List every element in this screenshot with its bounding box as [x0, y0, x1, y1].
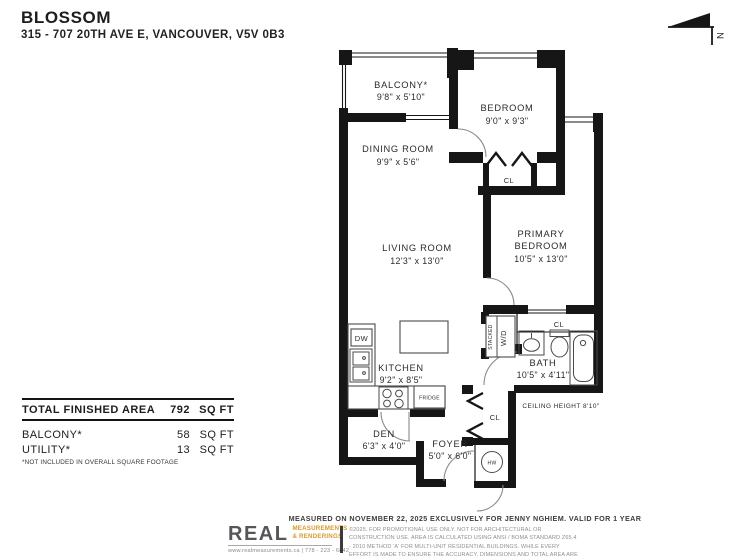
- balcony-dims: 9'8" x 5'10": [377, 92, 425, 102]
- den-label: DEN: [373, 429, 395, 439]
- den-dims: 6'3" x 4'0": [363, 441, 406, 451]
- utility-area-label: UTILITY*: [22, 444, 156, 456]
- primary-bedroom-dims: 10'5" x 13'0": [514, 254, 567, 264]
- bath-dims: 10'5" x 4'11": [517, 370, 570, 380]
- primary-closet-label: CL: [554, 320, 565, 329]
- kitchen-dims: 9'2" x 8'5": [380, 375, 423, 385]
- total-area-label: TOTAL FINISHED AREA: [22, 404, 156, 416]
- bath-label: BATH: [530, 358, 557, 368]
- total-area-row: TOTAL FINISHED AREA 792 SQ FT: [22, 398, 234, 421]
- company-logo: REAL MEASUREMENTS & RENDERINGS www.realm…: [228, 525, 332, 554]
- disclaimer-text: ©2025. FOR PROMOTIONAL USE ONLY. NOT FOR…: [349, 526, 580, 560]
- bedroom-label: BEDROOM: [481, 103, 534, 113]
- bifold-doors: [468, 153, 532, 439]
- balcony-label: BALCONY*: [374, 80, 428, 90]
- utility-area-value: 13: [156, 444, 190, 456]
- balcony-area-value: 58: [156, 429, 190, 441]
- total-area-unit: SQ FT: [190, 404, 234, 416]
- floorplan-drawing: N: [0, 0, 747, 560]
- logo-sub-line2: & RENDERINGS: [292, 533, 342, 540]
- washer-dryer: STACKED W/D: [486, 316, 515, 357]
- floorplan-sheet: BLOSSOM 315 - 707 20TH AVE E, VANCOUVER,…: [0, 0, 747, 560]
- total-area-value: 792: [156, 404, 190, 416]
- dishwasher: DW: [351, 329, 372, 346]
- ceiling-height-note: CEILING HEIGHT 8'10": [522, 403, 599, 410]
- logo-contact: www.realmeasurements.ca | 778 - 223 - 68…: [228, 545, 332, 554]
- balcony-area-label: BALCONY*: [22, 429, 156, 441]
- foyer-label: FOYER: [432, 439, 468, 449]
- living-room-dims: 12'3" x 13'0": [390, 256, 443, 266]
- north-label: N: [715, 32, 725, 39]
- hall-closet-label: CL: [490, 413, 501, 422]
- fridge: FRIDGE: [414, 386, 445, 408]
- logo-name: REAL: [228, 525, 288, 543]
- washer-dryer-label: W/D: [499, 330, 508, 346]
- balcony-area-row: BALCONY* 58 SQ FT: [22, 429, 234, 441]
- hot-water-label: HW: [488, 461, 497, 467]
- dining-room-dims: 9'9" x 5'6": [377, 157, 420, 167]
- toilet: [550, 330, 569, 357]
- kitchen-label: KITCHEN: [378, 363, 424, 373]
- measured-line: MEASURED ON NOVEMBER 22, 2025 EXCLUSIVEL…: [230, 514, 700, 523]
- primary-bedroom-label-2: BEDROOM: [515, 241, 568, 251]
- balcony-area-unit: SQ FT: [190, 429, 234, 441]
- bedroom-closet-label: CL: [504, 176, 515, 185]
- area-table: TOTAL FINISHED AREA 792 SQ FT BALCONY* 5…: [22, 398, 234, 466]
- bedroom-dims: 9'0" x 9'3": [486, 116, 529, 126]
- bathtub: [570, 331, 597, 385]
- dining-room-label: DINING ROOM: [362, 144, 434, 154]
- interior-walls: [449, 152, 603, 488]
- north-arrow-icon: N: [668, 13, 725, 45]
- dishwasher-label: DW: [355, 334, 369, 343]
- fridge-label: FRIDGE: [419, 396, 440, 402]
- primary-bedroom-label-1: PRIMARY: [517, 229, 564, 239]
- utility-area-unit: SQ FT: [190, 444, 234, 456]
- utility-area-row: UTILITY* 13 SQ FT: [22, 444, 234, 456]
- foyer-dims: 5'0" x 6'0": [429, 451, 472, 461]
- exterior-walls: [339, 48, 603, 487]
- stacked-label: STACKED: [488, 324, 494, 349]
- footer-divider: [340, 526, 343, 553]
- hot-water-tank: HW: [482, 452, 503, 473]
- living-room-label: LIVING ROOM: [382, 243, 452, 253]
- area-footnote: *NOT INCLUDED IN OVERALL SQUARE FOOTAGE: [22, 459, 234, 466]
- bath-sink: [519, 331, 544, 355]
